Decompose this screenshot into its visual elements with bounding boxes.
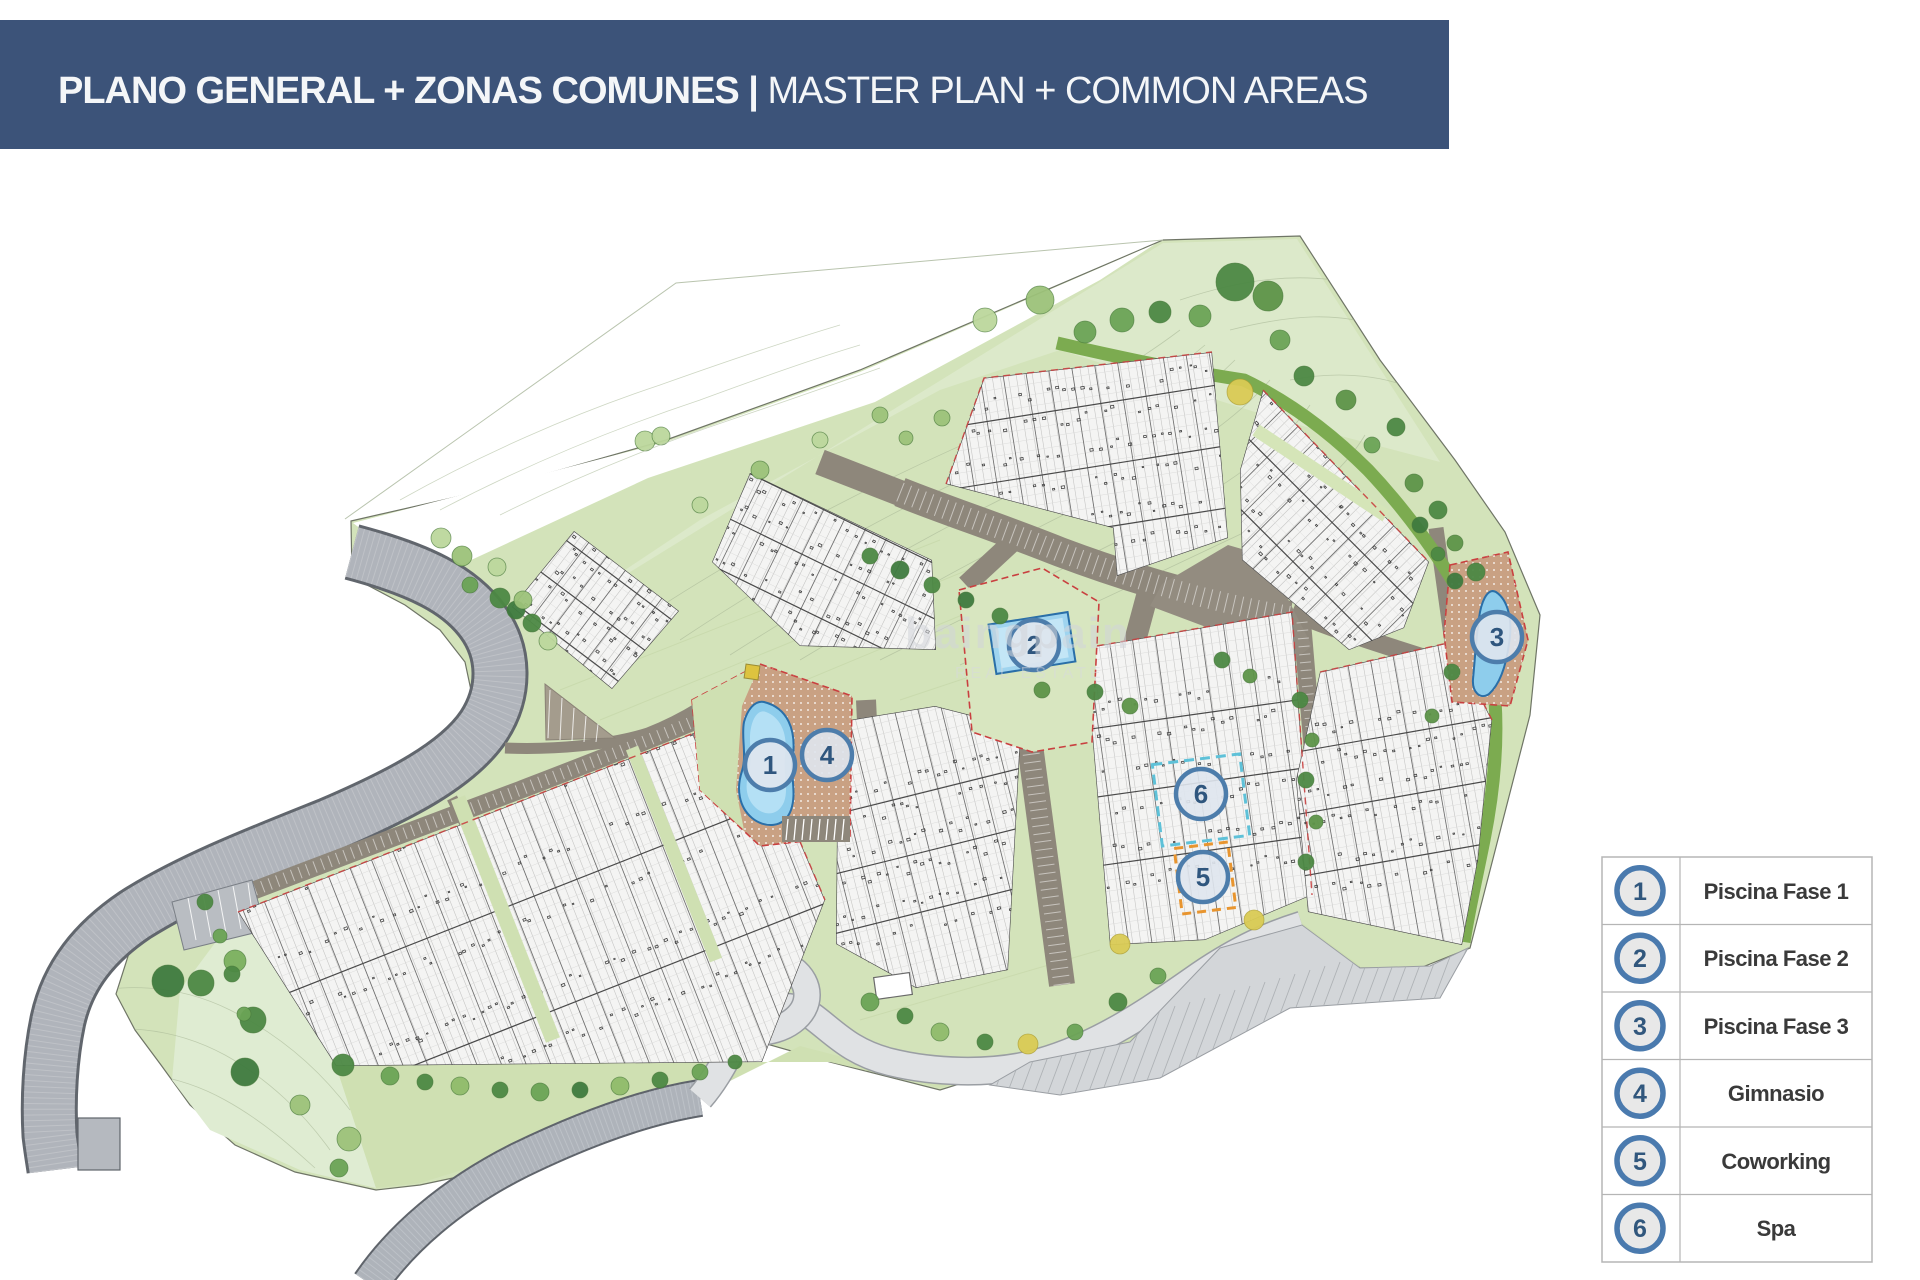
svg-text:Coworking: Coworking (1721, 1149, 1830, 1174)
svg-text:6: 6 (1633, 1215, 1647, 1243)
svg-text:REAL ESTATE: REAL ESTATE (955, 665, 1105, 682)
svg-text:3: 3 (1633, 1013, 1647, 1041)
svg-text:2: 2 (1633, 945, 1647, 973)
svg-text:baingpain: baingpain (905, 609, 1131, 658)
svg-text:PLANO GENERAL + ZONAS COMUNES: PLANO GENERAL + ZONAS COMUNES | MASTER P… (58, 70, 1368, 112)
svg-text:4: 4 (1633, 1080, 1647, 1108)
svg-text:Gimnasio: Gimnasio (1728, 1081, 1824, 1106)
svg-text:1: 1 (763, 750, 777, 780)
svg-text:Piscina Fase 2: Piscina Fase 2 (1704, 946, 1849, 971)
svg-text:6: 6 (1194, 779, 1208, 809)
svg-text:1: 1 (1633, 878, 1647, 906)
svg-text:Piscina Fase 3: Piscina Fase 3 (1704, 1014, 1849, 1039)
svg-text:3: 3 (1490, 622, 1504, 652)
svg-text:5: 5 (1196, 862, 1210, 892)
svg-text:Piscina Fase 1: Piscina Fase 1 (1704, 879, 1849, 904)
svg-text:4: 4 (820, 740, 835, 770)
svg-text:5: 5 (1633, 1148, 1647, 1176)
svg-text:Spa: Spa (1757, 1216, 1797, 1241)
